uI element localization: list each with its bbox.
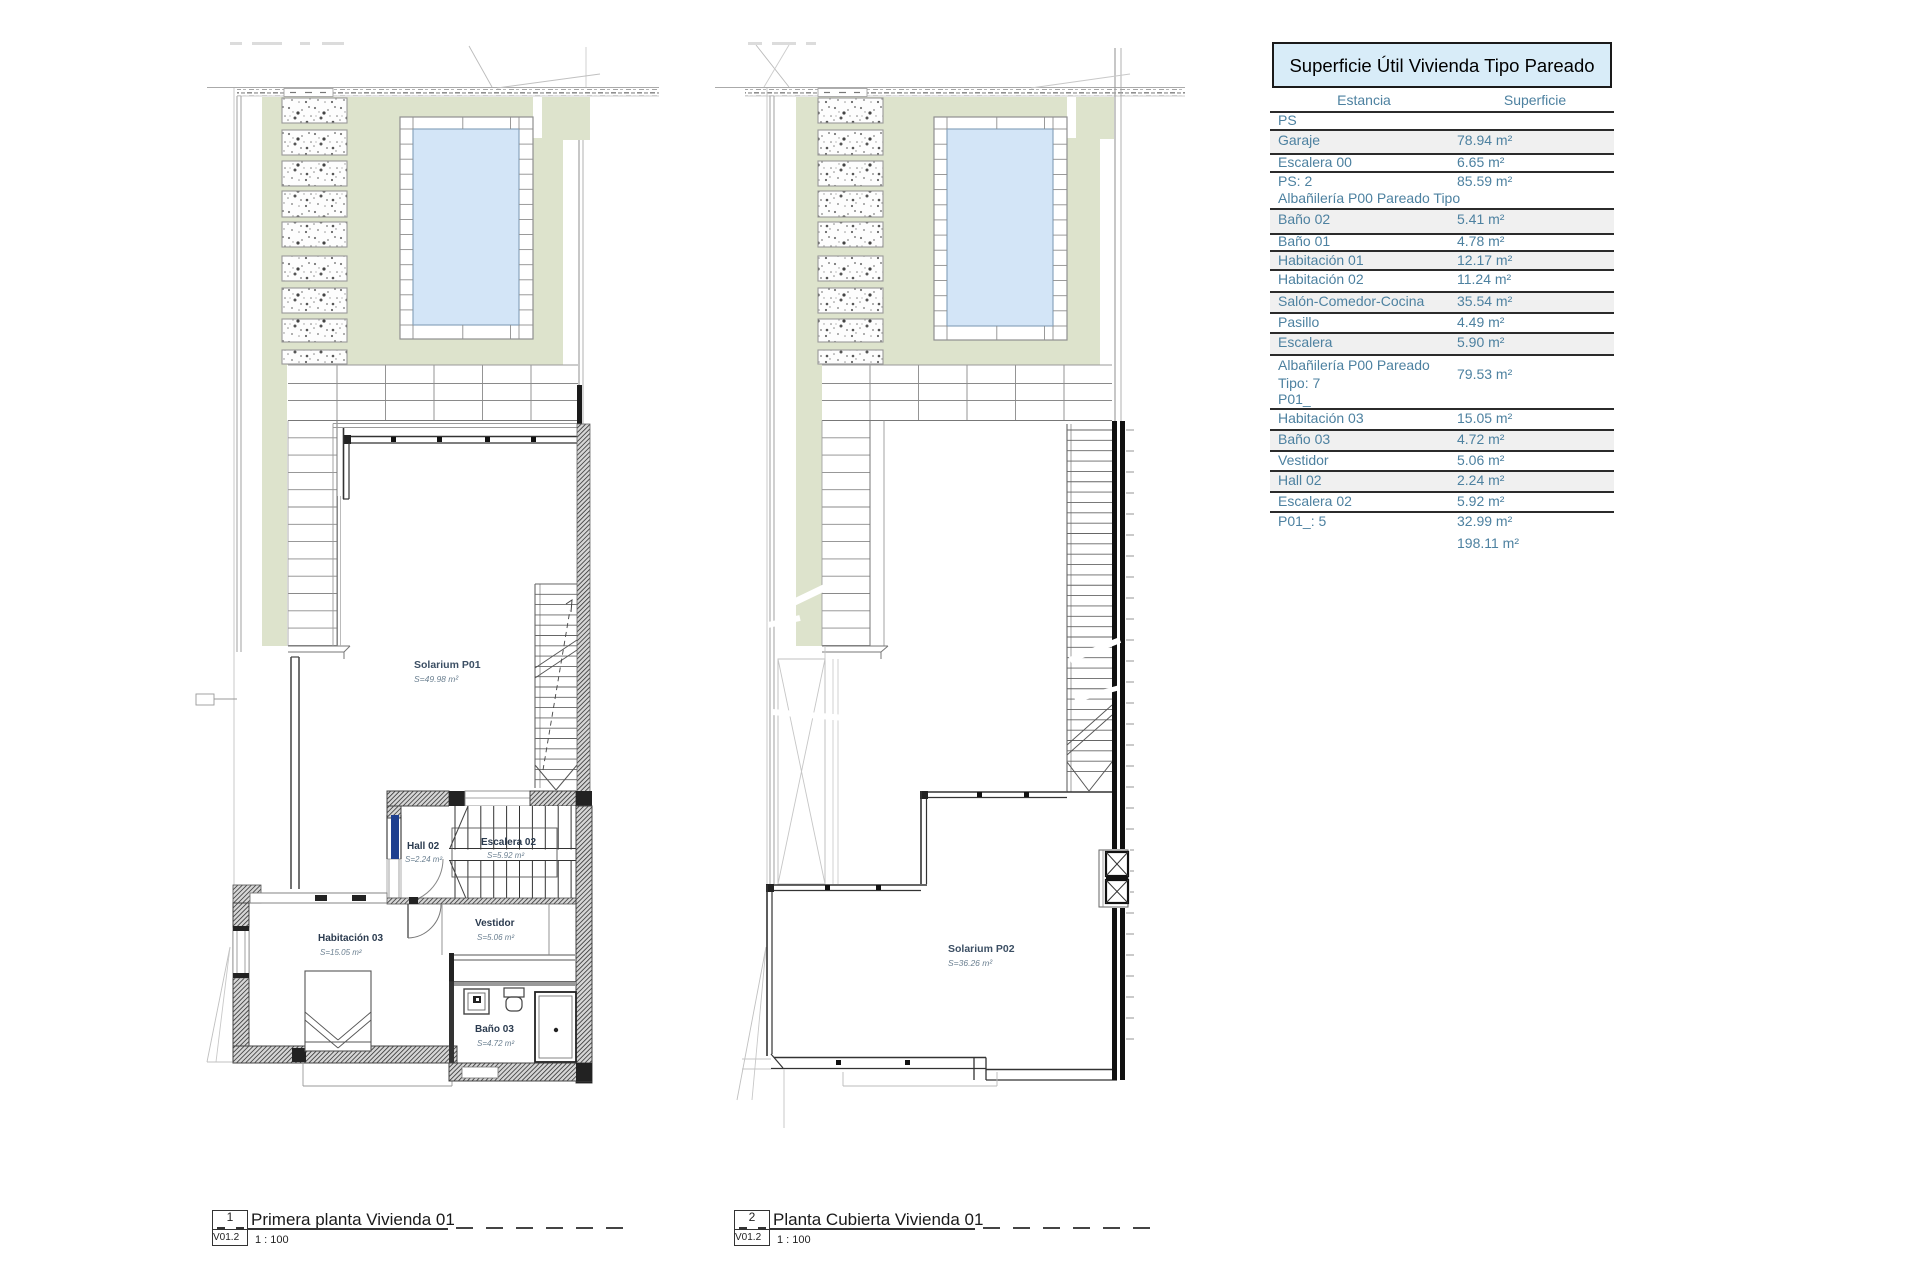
svg-text:Escalera 02: Escalera 02 [481,837,536,848]
svg-text:S=15.05 m²: S=15.05 m² [320,948,362,957]
svg-text:Hall 02: Hall 02 [407,841,440,852]
svg-text:Solarium P02: Solarium P02 [948,943,1015,955]
svg-text:S=2.24 m²: S=2.24 m² [405,855,442,864]
svg-text:S=49.98 m²: S=49.98 m² [414,674,459,684]
svg-text:Vestidor: Vestidor [475,918,515,929]
svg-text:S=36.26 m²: S=36.26 m² [948,958,993,968]
svg-text:S=5.06 m²: S=5.06 m² [477,933,514,942]
svg-text:S=4.72 m²: S=4.72 m² [477,1039,514,1048]
svg-text:Baño 03: Baño 03 [475,1024,514,1035]
svg-text:Solarium P01: Solarium P01 [414,659,481,671]
svg-text:S=5.92 m²: S=5.92 m² [487,851,524,860]
svg-text:Habitación 03: Habitación 03 [318,933,383,944]
